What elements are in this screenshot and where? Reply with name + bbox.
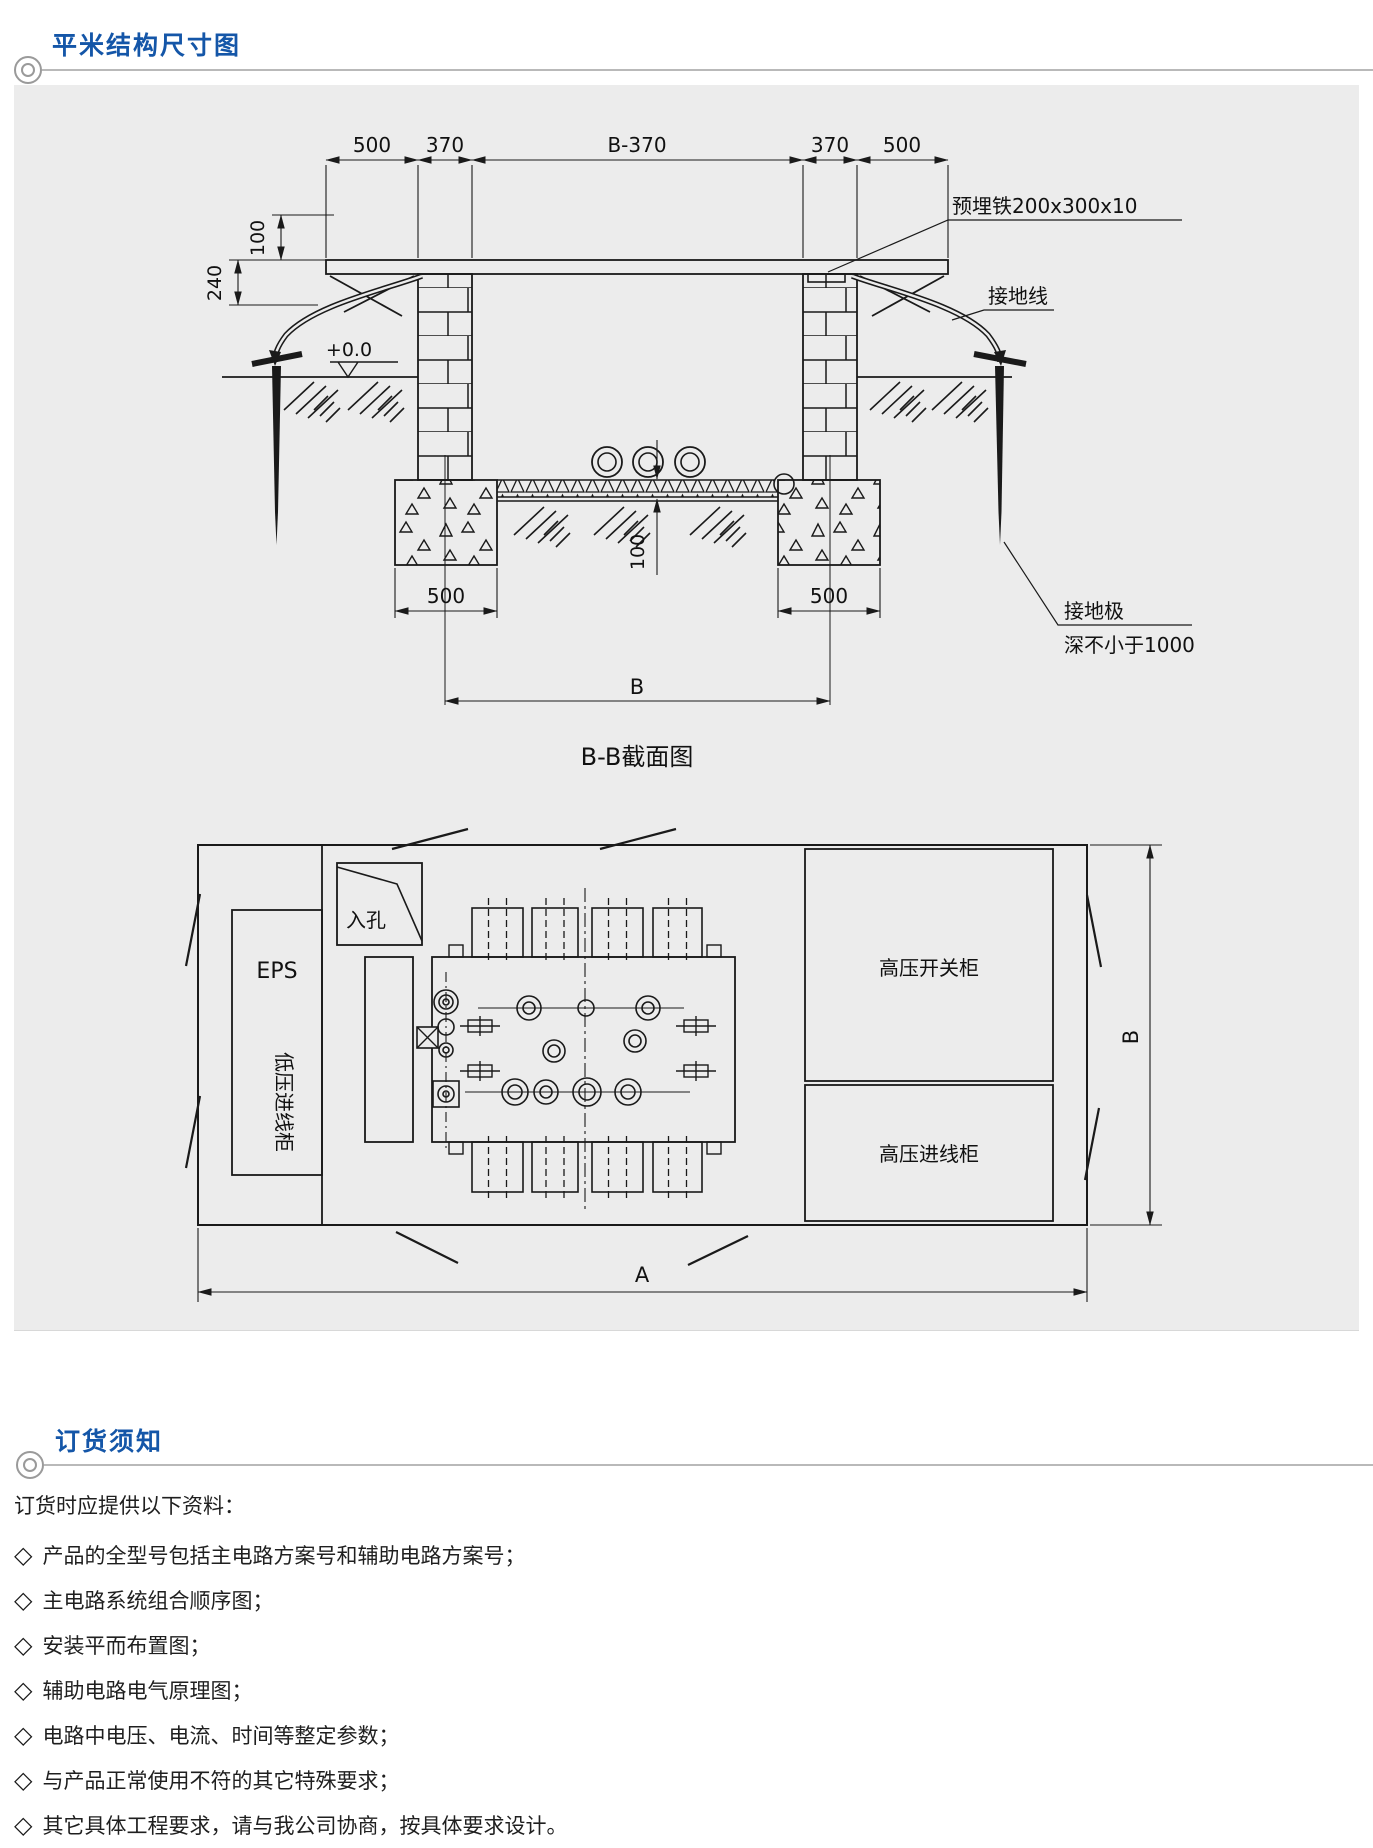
drawing-panel: 500 370 B-370 370 500 xyxy=(14,85,1359,1331)
soil-hatch xyxy=(284,382,340,422)
right-footing xyxy=(778,480,880,565)
roof-slab xyxy=(326,260,948,274)
dim-span: B xyxy=(630,675,644,699)
list-item: ◇ 与产品正常使用不符的其它特殊要求； xyxy=(14,1757,567,1802)
list-item-text: 电路中电压、电流、时间等整定参数； xyxy=(42,1720,399,1750)
ring-inner-icon xyxy=(23,1458,37,1472)
dim-height-upper: 100 xyxy=(247,220,269,256)
radiators-bottom xyxy=(472,1136,702,1201)
section1-title: 平米结构尺寸图 xyxy=(52,26,241,62)
soil-hatch xyxy=(348,382,404,422)
plan-view-drawing: EPS 低压进线柜 入孔 xyxy=(186,829,1162,1302)
list-item-text: 与产品正常使用不符的其它特殊要求； xyxy=(42,1765,399,1795)
dim-footing-right: 500 xyxy=(810,584,848,608)
diamond-bullet-icon: ◇ xyxy=(14,1586,32,1614)
ground-wire-label: 接地线 xyxy=(988,284,1048,308)
bushings-top-row xyxy=(478,996,684,1020)
top-extension-lines xyxy=(326,165,948,258)
list-item-text: 其它具体工程要求，请与我公司协商，按具体要求设计。 xyxy=(42,1810,567,1840)
bushings-bottom-row xyxy=(465,1078,690,1106)
eps-label: EPS xyxy=(256,959,297,984)
list-item: ◇ 产品的全型号包括主电路方案号和辅助电路方案号； xyxy=(14,1532,567,1577)
cable-trough xyxy=(365,957,413,1142)
manhole xyxy=(337,863,422,945)
left-brick-wall xyxy=(418,274,472,480)
valve-symbol xyxy=(417,1027,438,1048)
flange-symbols xyxy=(460,1016,716,1081)
ring-icon xyxy=(14,56,42,84)
list-item-text: 辅助电路电气原理图； xyxy=(42,1675,252,1705)
ground-rod-depth-label: 深不小于1000 xyxy=(1064,633,1195,657)
list-item-text: 安装平而布置图； xyxy=(42,1630,210,1660)
section2-title: 订货须知 xyxy=(55,1422,163,1458)
order-notes-list: ◇ 产品的全型号包括主电路方案号和辅助电路方案号； ◇ 主电路系统组合顺序图； … xyxy=(14,1532,567,1847)
dim-top-span: B-370 xyxy=(607,133,666,157)
diamond-bullet-icon: ◇ xyxy=(14,1811,32,1839)
left-dimensions xyxy=(229,215,334,305)
dim-height-lower: 240 xyxy=(204,265,226,301)
diamond-bullet-icon: ◇ xyxy=(14,1766,32,1794)
dim-top-right-overhang: 500 xyxy=(883,133,921,157)
cable-ducts xyxy=(592,447,705,477)
floor-strip xyxy=(497,480,778,501)
manhole-label: 入孔 xyxy=(346,908,386,932)
soil-hatch xyxy=(690,507,746,547)
transformer xyxy=(417,888,735,1212)
dim-footing-left: 500 xyxy=(427,584,465,608)
soil-hatch xyxy=(870,382,926,422)
diamond-bullet-icon: ◇ xyxy=(14,1721,32,1749)
list-item: ◇ 电路中电压、电流、时间等整定参数； xyxy=(14,1712,567,1757)
cross-section-caption: B-B截面图 xyxy=(581,743,694,771)
diamond-bullet-icon: ◇ xyxy=(14,1541,32,1569)
hv-incoming-label: 高压进线柜 xyxy=(879,1142,979,1166)
footing-dimensions xyxy=(395,568,880,618)
ground-rod-label: 接地极 xyxy=(1064,599,1124,623)
right-brick-wall xyxy=(803,274,857,480)
list-item: ◇ 其它具体工程要求，请与我公司协商，按具体要求设计。 xyxy=(14,1802,567,1847)
dim-top-left-wall: 370 xyxy=(426,133,464,157)
list-item-text: 主电路系统组合顺序图； xyxy=(42,1585,273,1615)
transformer-body xyxy=(432,957,735,1142)
dim-floor-thickness: 100 xyxy=(627,534,649,570)
catalog-page: 平米结构尺寸图 xyxy=(0,0,1373,1848)
lv-incoming-label: 低压进线柜 xyxy=(272,1052,296,1152)
radiators-top xyxy=(472,898,702,963)
order-notes-intro: 订货时应提供以下资料： xyxy=(14,1490,245,1520)
cross-section-drawing: 500 370 B-370 370 500 xyxy=(204,133,1195,771)
ring-icon xyxy=(16,1451,44,1479)
ground-wires xyxy=(269,276,1006,366)
embedded-plate-label: 预埋铁200x300x10 xyxy=(952,194,1137,218)
list-item: ◇ 安装平而布置图； xyxy=(14,1622,567,1667)
dim-top-left-overhang: 500 xyxy=(353,133,391,157)
dim-depth: B xyxy=(1119,1030,1143,1044)
level-mark-label: +0.0 xyxy=(326,339,372,361)
diamond-bullet-icon: ◇ xyxy=(14,1631,32,1659)
level-mark xyxy=(330,362,398,377)
technical-drawing: 500 370 B-370 370 500 xyxy=(14,85,1359,1331)
list-item-text: 产品的全型号包括主电路方案号和辅助电路方案号； xyxy=(42,1540,525,1570)
list-item: ◇ 辅助电路电气原理图； xyxy=(14,1667,567,1712)
soil-hatch xyxy=(514,507,570,547)
ring-inner-icon xyxy=(21,63,35,77)
dim-width: A xyxy=(635,1263,650,1287)
list-item: ◇ 主电路系统组合顺序图； xyxy=(14,1577,567,1622)
section1-divider xyxy=(42,69,1373,71)
dim-top-right-wall: 370 xyxy=(811,133,849,157)
diamond-bullet-icon: ◇ xyxy=(14,1676,32,1704)
bushings-mid xyxy=(543,1030,646,1062)
embedded-plate-leader xyxy=(828,220,1182,272)
soil-hatch xyxy=(932,382,988,422)
hv-switchgear-label: 高压开关柜 xyxy=(879,956,979,980)
section2-divider xyxy=(44,1464,1373,1466)
left-footing xyxy=(395,480,497,565)
